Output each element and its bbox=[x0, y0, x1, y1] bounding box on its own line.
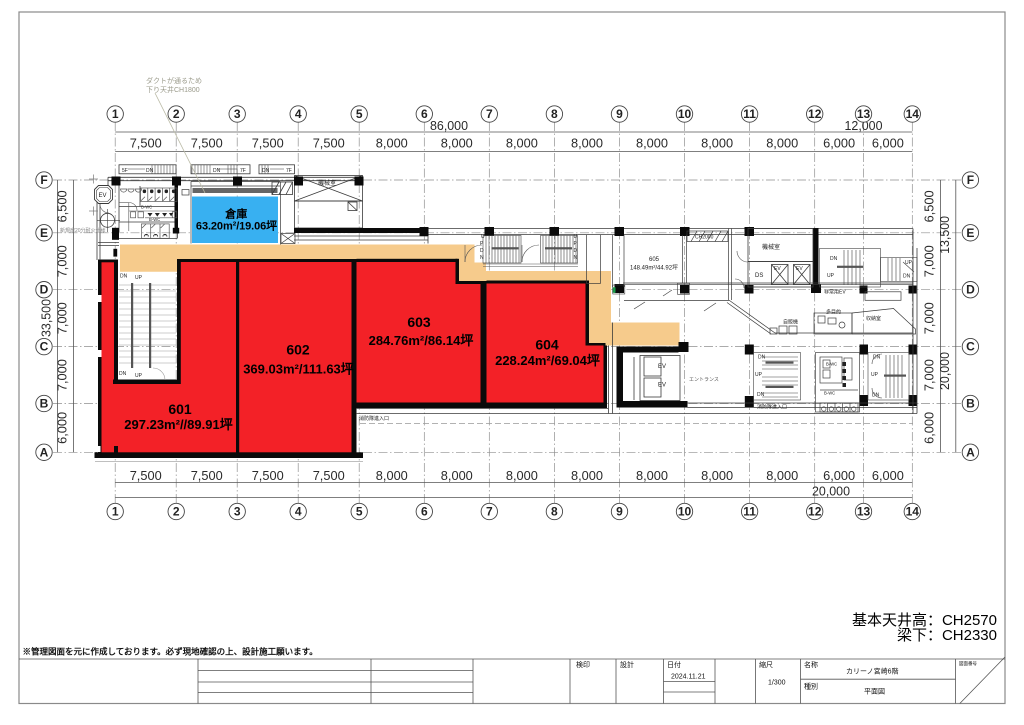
svg-text:13: 13 bbox=[857, 505, 871, 519]
svg-text:12: 12 bbox=[808, 107, 822, 121]
svg-text:20,000: 20,000 bbox=[937, 352, 952, 390]
svg-text:7,500: 7,500 bbox=[130, 468, 162, 483]
svg-text:13,500: 13,500 bbox=[937, 216, 952, 254]
svg-text:7: 7 bbox=[486, 107, 493, 121]
svg-text:2: 2 bbox=[173, 505, 180, 519]
svg-text:機械室: 機械室 bbox=[762, 243, 780, 251]
svg-text:20,000: 20,000 bbox=[812, 484, 850, 499]
svg-text:8,000: 8,000 bbox=[701, 136, 733, 151]
svg-text:8,000: 8,000 bbox=[441, 468, 473, 483]
svg-text:7,500: 7,500 bbox=[191, 136, 223, 151]
svg-text:369.03m²/111.63坪: 369.03m²/111.63坪 bbox=[243, 362, 354, 377]
svg-text:4: 4 bbox=[295, 505, 302, 519]
svg-text:6,500: 6,500 bbox=[922, 190, 937, 222]
svg-text:EV: EV bbox=[658, 364, 666, 370]
svg-text:DN: DN bbox=[872, 393, 880, 399]
svg-text:7,500: 7,500 bbox=[313, 468, 345, 483]
svg-text:平面図: 平面図 bbox=[864, 688, 885, 696]
svg-text:エントランス: エントランス bbox=[689, 377, 719, 383]
svg-text:U: U bbox=[481, 234, 485, 240]
svg-text:1/300: 1/300 bbox=[768, 680, 786, 687]
svg-text:10: 10 bbox=[678, 107, 692, 121]
svg-text:7,000: 7,000 bbox=[55, 359, 70, 391]
svg-text:N: N bbox=[574, 255, 578, 261]
svg-text:DN: DN bbox=[213, 168, 221, 174]
svg-text:DN: DN bbox=[262, 168, 270, 174]
svg-text:8: 8 bbox=[551, 505, 558, 519]
svg-text:5F: 5F bbox=[122, 168, 128, 174]
svg-text:8,000: 8,000 bbox=[571, 468, 603, 483]
svg-text:7,000: 7,000 bbox=[922, 359, 937, 391]
svg-text:D: D bbox=[40, 283, 49, 297]
svg-text:6,500: 6,500 bbox=[55, 190, 70, 222]
svg-text:UP: UP bbox=[871, 372, 879, 378]
svg-text:6,000: 6,000 bbox=[823, 468, 855, 483]
svg-text:B: B bbox=[40, 397, 49, 411]
svg-text:14: 14 bbox=[906, 505, 920, 519]
svg-text:非常用EV: 非常用EV bbox=[824, 289, 846, 296]
svg-text:8,000: 8,000 bbox=[766, 468, 798, 483]
svg-text:F: F bbox=[40, 173, 47, 187]
svg-text:604: 604 bbox=[535, 337, 559, 353]
svg-text:9: 9 bbox=[616, 107, 623, 121]
svg-text:DN: DN bbox=[830, 256, 838, 262]
svg-text:EV: EV bbox=[658, 383, 666, 389]
svg-text:多目的: 多目的 bbox=[826, 309, 841, 316]
svg-text:3: 3 bbox=[234, 505, 241, 519]
svg-text:E: E bbox=[40, 226, 48, 240]
svg-text:2: 2 bbox=[173, 107, 180, 121]
svg-text:DN: DN bbox=[873, 355, 881, 361]
svg-text:7,500: 7,500 bbox=[191, 468, 223, 483]
svg-text:DN: DN bbox=[757, 392, 765, 398]
svg-text:B-WC: B-WC bbox=[826, 362, 837, 367]
svg-text:6: 6 bbox=[421, 505, 428, 519]
svg-text:7,000: 7,000 bbox=[55, 302, 70, 334]
svg-text:UP: UP bbox=[755, 372, 763, 378]
svg-text:8,000: 8,000 bbox=[441, 136, 473, 151]
svg-text:縮尺: 縮尺 bbox=[759, 660, 773, 669]
svg-text:297.23m²//89.91坪: 297.23m²//89.91坪 bbox=[124, 417, 232, 432]
svg-text:7,500: 7,500 bbox=[252, 136, 284, 151]
svg-text:8,000: 8,000 bbox=[701, 468, 733, 483]
svg-text:3: 3 bbox=[234, 107, 241, 121]
svg-text:6,000: 6,000 bbox=[872, 468, 904, 483]
svg-text:倉庫: 倉庫 bbox=[224, 207, 247, 221]
svg-text:B-WC: B-WC bbox=[141, 205, 152, 210]
svg-text:63.20m²/19.06坪: 63.20m²/19.06坪 bbox=[196, 220, 277, 233]
svg-text:6,000: 6,000 bbox=[872, 136, 904, 151]
svg-text:11: 11 bbox=[743, 505, 756, 519]
svg-text:カリーノ宮崎6階: カリーノ宮崎6階 bbox=[846, 667, 898, 676]
svg-text:7F: 7F bbox=[286, 168, 292, 174]
svg-text:EV: EV bbox=[796, 266, 803, 272]
svg-text:6,000: 6,000 bbox=[823, 136, 855, 151]
svg-text:8,000: 8,000 bbox=[376, 136, 408, 151]
svg-text:7,000: 7,000 bbox=[922, 245, 937, 277]
svg-text:4: 4 bbox=[295, 107, 302, 121]
svg-text:消防隊進入口: 消防隊進入口 bbox=[359, 415, 389, 422]
svg-text:DN: DN bbox=[758, 355, 766, 361]
svg-text:B-WC: B-WC bbox=[149, 217, 160, 222]
svg-text:新規扉20分耐火仕様: 新規扉20分耐火仕様 bbox=[60, 227, 106, 234]
svg-text:8,000: 8,000 bbox=[376, 468, 408, 483]
svg-text:UP: UP bbox=[905, 260, 913, 266]
svg-text:8,000: 8,000 bbox=[766, 136, 798, 151]
svg-text:N: N bbox=[480, 255, 484, 261]
svg-text:605: 605 bbox=[649, 257, 660, 263]
svg-text:EV: EV bbox=[774, 266, 781, 272]
svg-text:B-WC: B-WC bbox=[824, 391, 835, 396]
svg-text:DN: DN bbox=[903, 274, 911, 280]
svg-text:10: 10 bbox=[678, 505, 692, 519]
svg-text:8,000: 8,000 bbox=[636, 468, 668, 483]
svg-text:UP: UP bbox=[135, 275, 143, 281]
svg-text:8,000: 8,000 bbox=[506, 468, 538, 483]
svg-text:種別: 種別 bbox=[804, 682, 818, 691]
svg-text:8,000: 8,000 bbox=[506, 136, 538, 151]
svg-text:8,000: 8,000 bbox=[571, 136, 603, 151]
svg-text:U: U bbox=[574, 234, 578, 240]
svg-text:8,000: 8,000 bbox=[636, 136, 668, 151]
svg-text:7F: 7F bbox=[240, 168, 246, 174]
svg-text:収納室: 収納室 bbox=[866, 315, 881, 322]
svg-text:5: 5 bbox=[356, 505, 363, 519]
svg-text:D: D bbox=[574, 248, 578, 254]
svg-text:DS: DS bbox=[755, 273, 763, 279]
svg-text:ダクトが通るため: ダクトが通るため bbox=[146, 76, 202, 85]
svg-text:EV: EV bbox=[99, 193, 107, 199]
svg-text:設計: 設計 bbox=[620, 660, 634, 669]
svg-text:148.49m²/44.92坪: 148.49m²/44.92坪 bbox=[630, 264, 678, 272]
svg-text:C: C bbox=[966, 340, 975, 354]
svg-text:6,000: 6,000 bbox=[55, 412, 70, 444]
svg-text:7: 7 bbox=[486, 505, 493, 519]
svg-text:A: A bbox=[966, 445, 975, 459]
svg-text:DN: DN bbox=[146, 168, 154, 174]
svg-text:※管理図面を元に作成しております。必ず現地確認の上、設計施工: ※管理図面を元に作成しております。必ず現地確認の上、設計施工願います。 bbox=[23, 647, 318, 657]
svg-text:B: B bbox=[966, 397, 975, 411]
svg-text:自販機: 自販機 bbox=[783, 319, 798, 326]
svg-text:601: 601 bbox=[168, 401, 192, 417]
svg-text:2024.11.21: 2024.11.21 bbox=[671, 674, 706, 681]
svg-text:梁下：CH2330: 梁下：CH2330 bbox=[897, 627, 997, 644]
svg-text:UP: UP bbox=[827, 273, 835, 279]
svg-text:F: F bbox=[967, 173, 974, 187]
svg-text:7,000: 7,000 bbox=[922, 302, 937, 334]
svg-text:1: 1 bbox=[112, 107, 119, 121]
svg-text:86,000: 86,000 bbox=[430, 118, 468, 133]
svg-text:名称: 名称 bbox=[804, 660, 818, 669]
svg-text:228.24m²/69.04坪: 228.24m²/69.04坪 bbox=[495, 353, 600, 368]
svg-text:CH2000: CH2000 bbox=[695, 235, 714, 241]
svg-text:D: D bbox=[480, 248, 484, 254]
svg-text:12: 12 bbox=[808, 505, 822, 519]
svg-text:33,500: 33,500 bbox=[39, 299, 54, 337]
svg-text:E: E bbox=[966, 226, 974, 240]
svg-text:DN: DN bbox=[120, 274, 128, 280]
svg-text:日付: 日付 bbox=[667, 660, 681, 669]
svg-text:8: 8 bbox=[551, 107, 558, 121]
svg-text:DN: DN bbox=[119, 371, 127, 377]
svg-text:602: 602 bbox=[286, 342, 310, 358]
svg-text:D: D bbox=[966, 283, 975, 297]
svg-text:11: 11 bbox=[743, 107, 756, 121]
svg-text:検印: 検印 bbox=[576, 660, 590, 669]
svg-text:1: 1 bbox=[112, 505, 119, 519]
svg-text:図面番号: 図面番号 bbox=[959, 660, 977, 667]
svg-text:A: A bbox=[40, 445, 49, 459]
svg-text:C: C bbox=[40, 340, 49, 354]
svg-text:6: 6 bbox=[421, 107, 428, 121]
svg-text:14: 14 bbox=[906, 107, 920, 121]
svg-text:5: 5 bbox=[356, 107, 363, 121]
svg-text:UP: UP bbox=[135, 373, 143, 379]
svg-text:603: 603 bbox=[407, 314, 431, 330]
svg-text:下り天井CH1800: 下り天井CH1800 bbox=[146, 85, 200, 94]
svg-text:機械室: 機械室 bbox=[318, 179, 336, 187]
svg-text:9: 9 bbox=[616, 505, 623, 519]
svg-text:消防隊進入口: 消防隊進入口 bbox=[757, 404, 787, 411]
svg-text:7,500: 7,500 bbox=[313, 136, 345, 151]
svg-text:284.76m²/86.14坪: 284.76m²/86.14坪 bbox=[369, 333, 474, 348]
svg-text:7,000: 7,000 bbox=[55, 245, 70, 277]
svg-text:13: 13 bbox=[857, 107, 871, 121]
svg-text:7,500: 7,500 bbox=[130, 136, 162, 151]
svg-text:7,500: 7,500 bbox=[252, 468, 284, 483]
svg-text:6,000: 6,000 bbox=[922, 412, 937, 444]
